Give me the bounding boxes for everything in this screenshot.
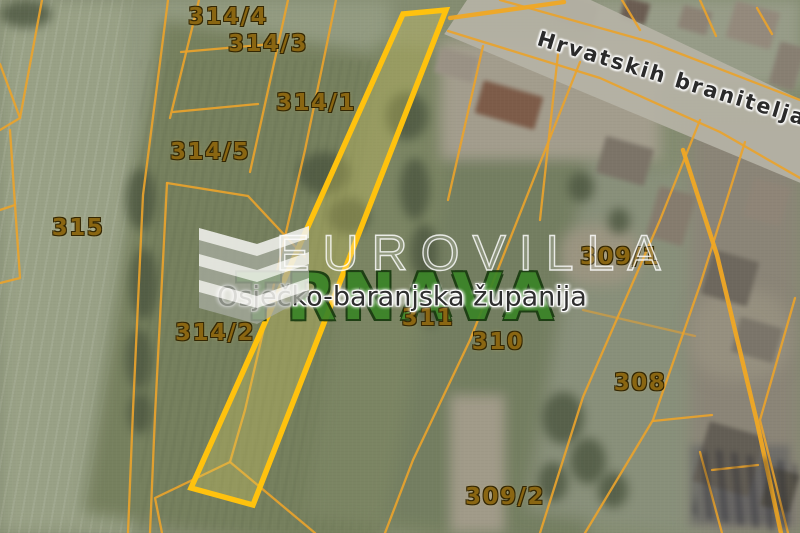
parcel-number-label: 314/1 [276, 90, 356, 116]
parcel-number-label: 309/1 [580, 244, 660, 270]
region-label: Osječko-baranjska županija [217, 282, 587, 313]
parcel-number-label: 308 [614, 370, 667, 396]
parcel-number-label: 314/5 [170, 139, 250, 165]
parcel-number-label: 315 [52, 215, 105, 241]
parcel-number-label: 314/4 [188, 4, 268, 30]
parcel-number-label: 310 [472, 329, 525, 355]
cadastral-map[interactable]: TRNAVA 314/4314/3314/1314/5315314/2309/1… [0, 0, 800, 533]
parcel-number-label: 314/2 [175, 320, 255, 346]
parcel-number-label: 314/3 [228, 31, 308, 57]
parcel-number-label: 309/2 [465, 484, 545, 510]
